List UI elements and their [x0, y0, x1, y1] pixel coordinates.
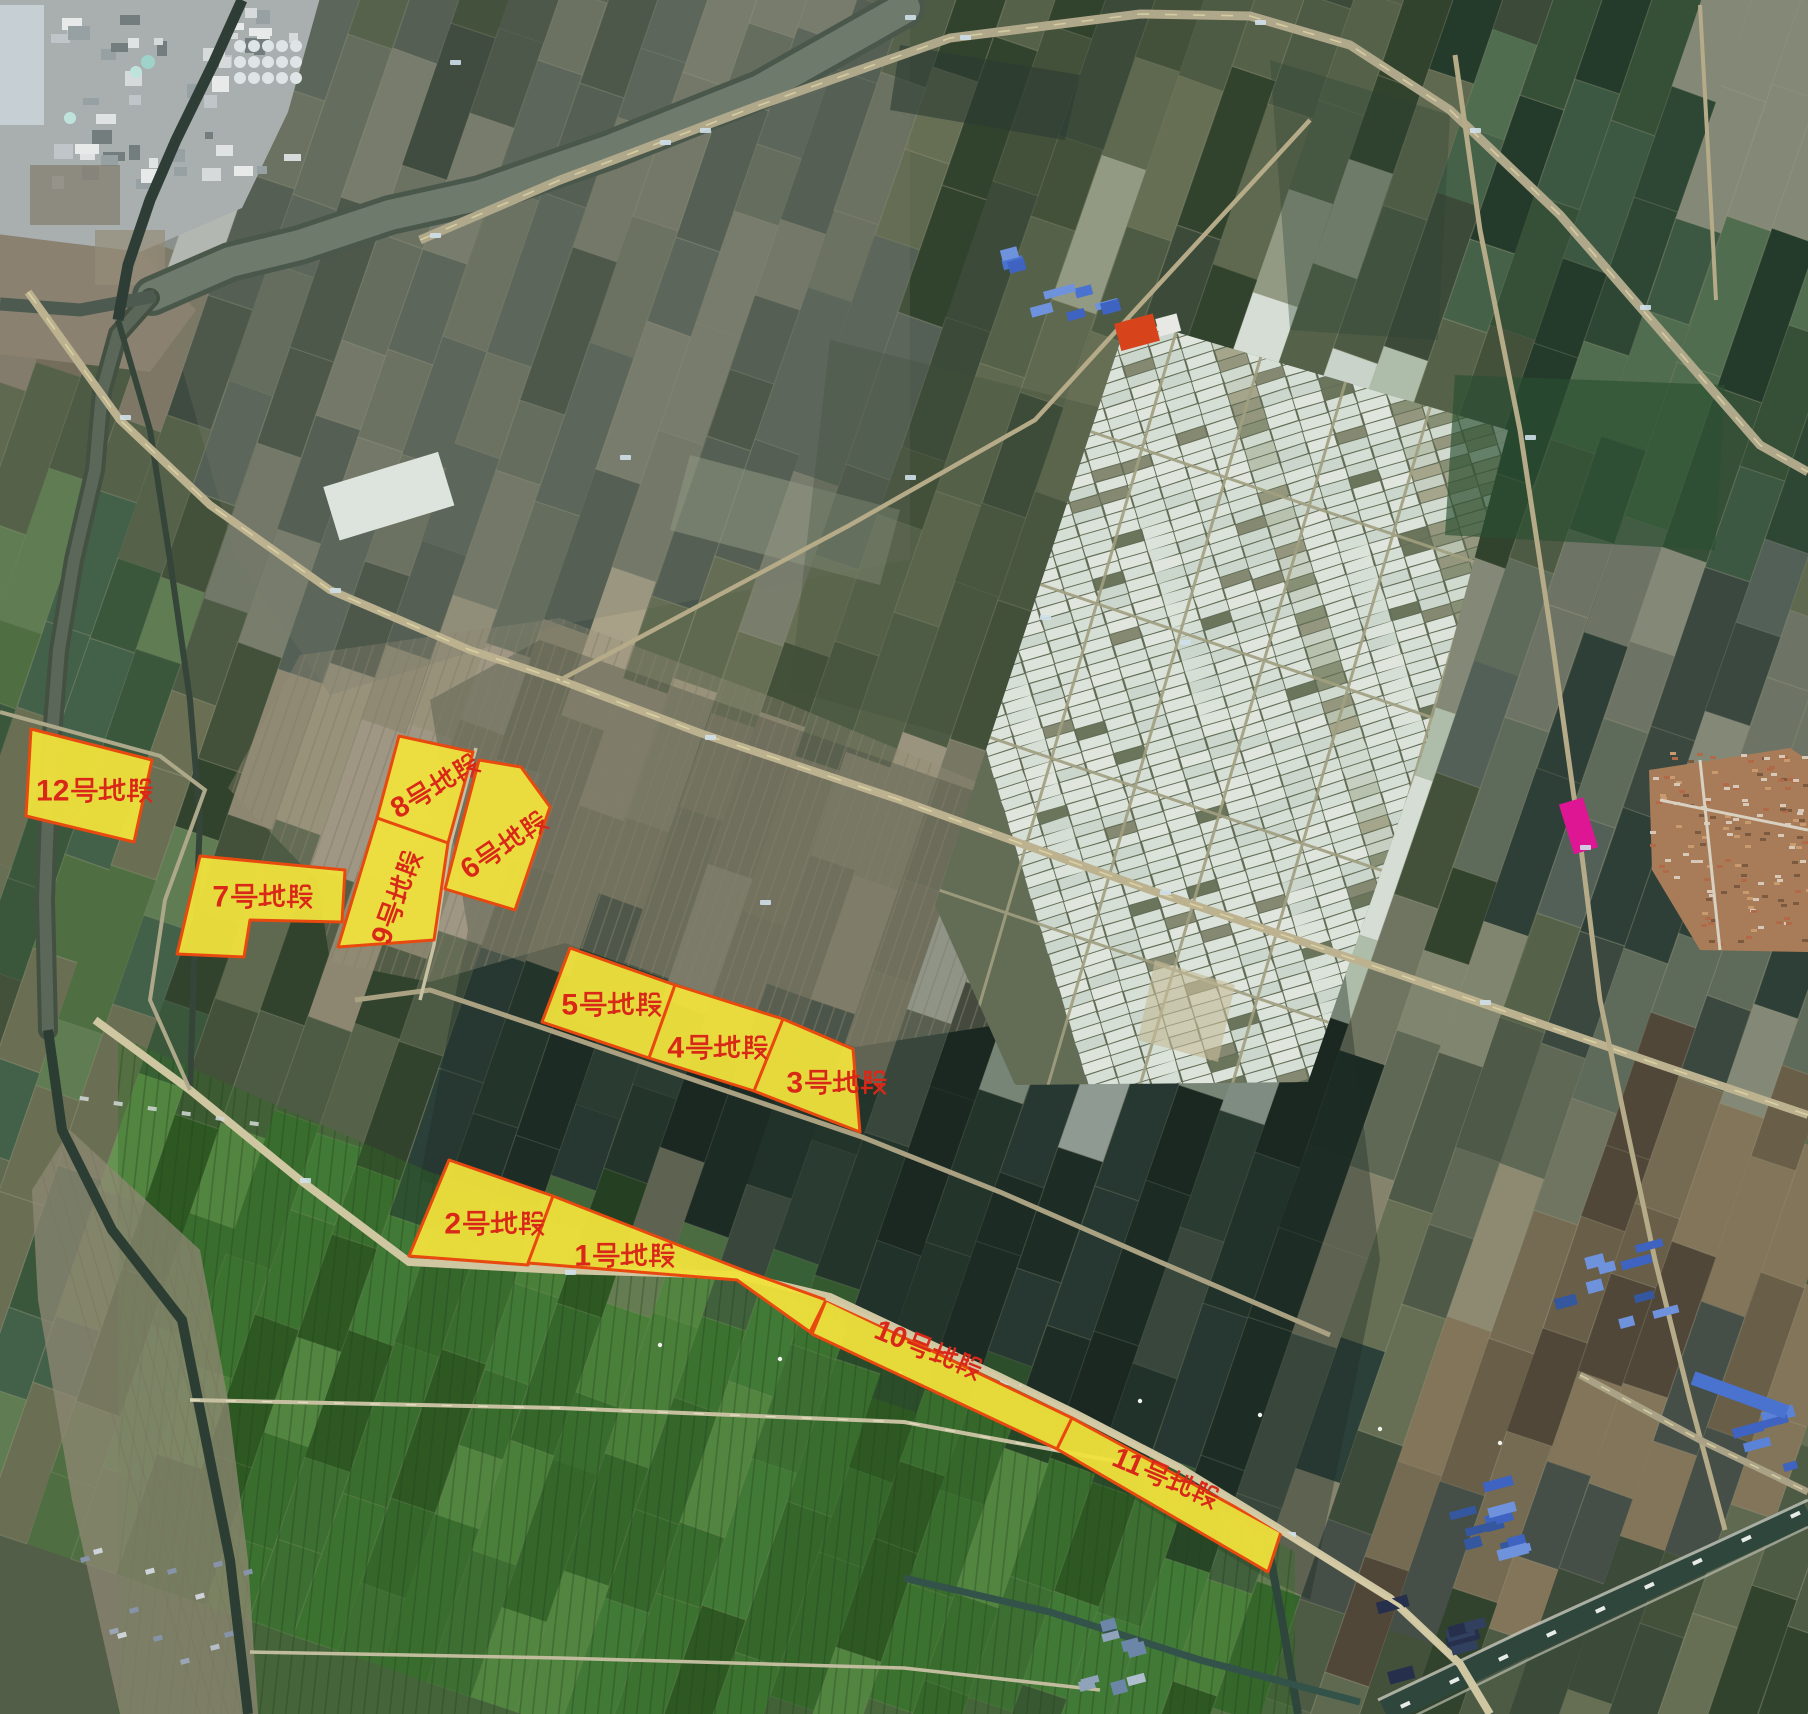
svg-text:3: 3 — [786, 1066, 803, 1099]
svg-text:12: 12 — [36, 774, 69, 807]
svg-text:1: 1 — [574, 1239, 591, 1272]
svg-text:4: 4 — [667, 1031, 684, 1064]
svg-text:7: 7 — [212, 880, 229, 913]
svg-text:5: 5 — [561, 988, 578, 1021]
svg-text:2: 2 — [444, 1207, 461, 1240]
